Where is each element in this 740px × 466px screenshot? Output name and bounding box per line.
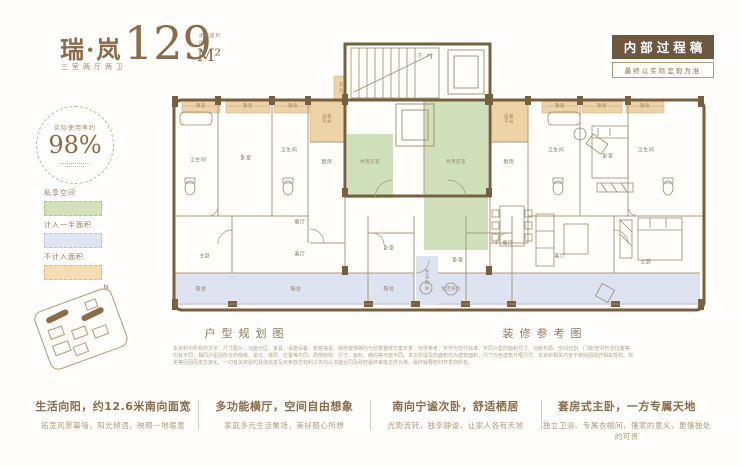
disclaimer-line: 本资料中所有的文字、尺寸图片、功能分区、家具、设施设备、软装摆设、装修装饰等均为…	[173, 346, 707, 353]
room-label: 卧室	[383, 245, 394, 252]
legend-uncounted-area: 不计入面积	[44, 252, 114, 280]
feature-multifunction-hall: 多功能横厅，空间自由想象 家庭多元生活聚场，美好随心所想	[199, 398, 369, 431]
room-label: 客厅	[294, 251, 305, 258]
floorplan-poster: 瑞·岚 三室两厅两卫 129 建筑面积 约 M² 内部过程稿 最终以实际呈现为准…	[0, 0, 740, 466]
keyplan-building-icon	[52, 340, 72, 356]
room-label: 阳台	[195, 286, 206, 293]
seal-caption-line	[66, 166, 84, 167]
disclaimer-line: 定等原因而发生变化。一切有关房屋的具体信息及买卖双方权利义务均以书面合同及政府最…	[173, 360, 707, 367]
room-label: 飘窗	[288, 103, 298, 109]
room-label: 设备平台	[320, 115, 334, 126]
floorplan-area: 卫生间 卧室 卫生间 厨房 设备平台 平台 下 共用前室 共用前室 餐厅 客厅 …	[168, 38, 712, 345]
room-label: 卫生间	[548, 147, 565, 154]
room-label: 卫生间	[281, 147, 298, 154]
keyplan-building-icon	[92, 324, 110, 339]
legend-label: 私享空间	[44, 188, 114, 198]
room-label: 卧室	[240, 155, 251, 162]
room-label: 阳台	[290, 286, 301, 293]
legend-swatch-blue	[44, 233, 102, 248]
room-label: 餐厅	[294, 219, 305, 226]
room-label: 客厅	[554, 253, 565, 260]
room-label: 主卧	[640, 259, 651, 266]
legend-swatch-green	[44, 201, 102, 216]
room-label: 阳台	[383, 286, 394, 293]
feature-desc: 光影流转，独享静谧，让家人各有天地	[371, 420, 541, 431]
keyplan-building-icon	[45, 308, 69, 324]
legend-swatch-tan	[44, 265, 102, 280]
room-label: 共用前室	[446, 159, 466, 165]
caption-decor-reference: 装修参考图	[465, 325, 625, 341]
room-label: 卫生间	[190, 157, 207, 164]
room-label: 设备平台	[502, 115, 516, 126]
room-label: 卧室	[452, 257, 463, 264]
room-label: 卧室	[602, 153, 613, 160]
site-keyplan-card	[32, 286, 130, 372]
room-label: 飘窗	[196, 103, 206, 109]
disclaimer-line: 均有不同；相同户型因所在的楼栋、单元、楼层、位置等不同，局部结构、尺寸、面积、朝…	[173, 353, 707, 360]
feature-quiet-bedroom: 南向宁谧次卧，舒适栖居 光影流转，独享静谧，让家人各有天地	[371, 398, 541, 431]
room-label: 卫生间	[638, 147, 655, 154]
usage-ratio-value: 98%	[48, 132, 101, 158]
room-label: 飘窗	[597, 103, 607, 109]
floorplan-drawing	[168, 38, 712, 345]
feature-desc: 家庭多元生活聚场，美好随心所想	[199, 420, 369, 431]
room-label: 厨房	[321, 159, 332, 166]
feature-south-facing: 生活向阳，约12.6米南向面宽 拓宽风景幕墙，阳光倾洒，映照一地暖意	[28, 398, 198, 431]
room-label: 共用前室	[360, 159, 380, 165]
layout-type-label: 三室两厅两卫	[61, 62, 127, 72]
feature-title: 生活向阳，约12.6米南向面宽	[28, 398, 198, 414]
room-label: 厨房	[503, 159, 514, 166]
seal-caption-line	[60, 163, 90, 164]
room-label: 生活阳台	[423, 269, 429, 291]
room-label: 餐厅	[502, 240, 513, 247]
legend-private-space: 私享空间	[44, 188, 114, 216]
feature-title: 套房式主卧，一方专属天地	[542, 398, 712, 414]
feature-desc: 拓宽风景幕墙，阳光倾洒，映照一地暖意	[28, 420, 198, 431]
room-label: 下	[417, 53, 423, 60]
feature-title: 南向宁谧次卧，舒适栖居	[371, 398, 541, 414]
usage-ratio-seal: 实际使用率约 98%	[36, 106, 114, 184]
feature-suite-master: 套房式主卧，一方专属天地 独立卫浴、专属衣帽间，懂家的意义，更懂独处的可贵	[542, 398, 712, 442]
feature-desc: 独立卫浴、专属衣帽间，懂家的意义，更懂独处的可贵	[542, 420, 712, 442]
keyplan-building-icon	[73, 342, 90, 356]
room-label: 飘窗	[640, 103, 650, 109]
legend-label: 不计入面积	[44, 252, 114, 262]
room-label: 主卧	[199, 253, 210, 260]
caption-plan-diagram: 户型规划图	[167, 325, 327, 341]
feature-title: 多功能横厅，空间自由想象	[199, 398, 369, 414]
room-label: 飘窗	[555, 103, 565, 109]
feature-row: 生活向阳，约12.6米南向面宽 拓宽风景幕墙，阳光倾洒，映照一地暖意 多功能横厅…	[28, 398, 712, 442]
room-label: 平台	[337, 83, 343, 94]
room-label: 飘窗	[243, 103, 253, 109]
legend-label: 计入一半面积	[44, 220, 114, 230]
keyplan-building-icon	[48, 325, 66, 340]
keyplan-building-icon	[71, 325, 89, 340]
legal-disclaimer: 本资料中所有的文字、尺寸图片、功能分区、家具、设施设备、软装摆设、装修装饰等均为…	[173, 346, 707, 367]
legend-half-area: 计入一半面积	[44, 220, 114, 248]
room-label: 生活阳台	[441, 286, 461, 292]
project-logo: 瑞·岚	[60, 30, 122, 65]
